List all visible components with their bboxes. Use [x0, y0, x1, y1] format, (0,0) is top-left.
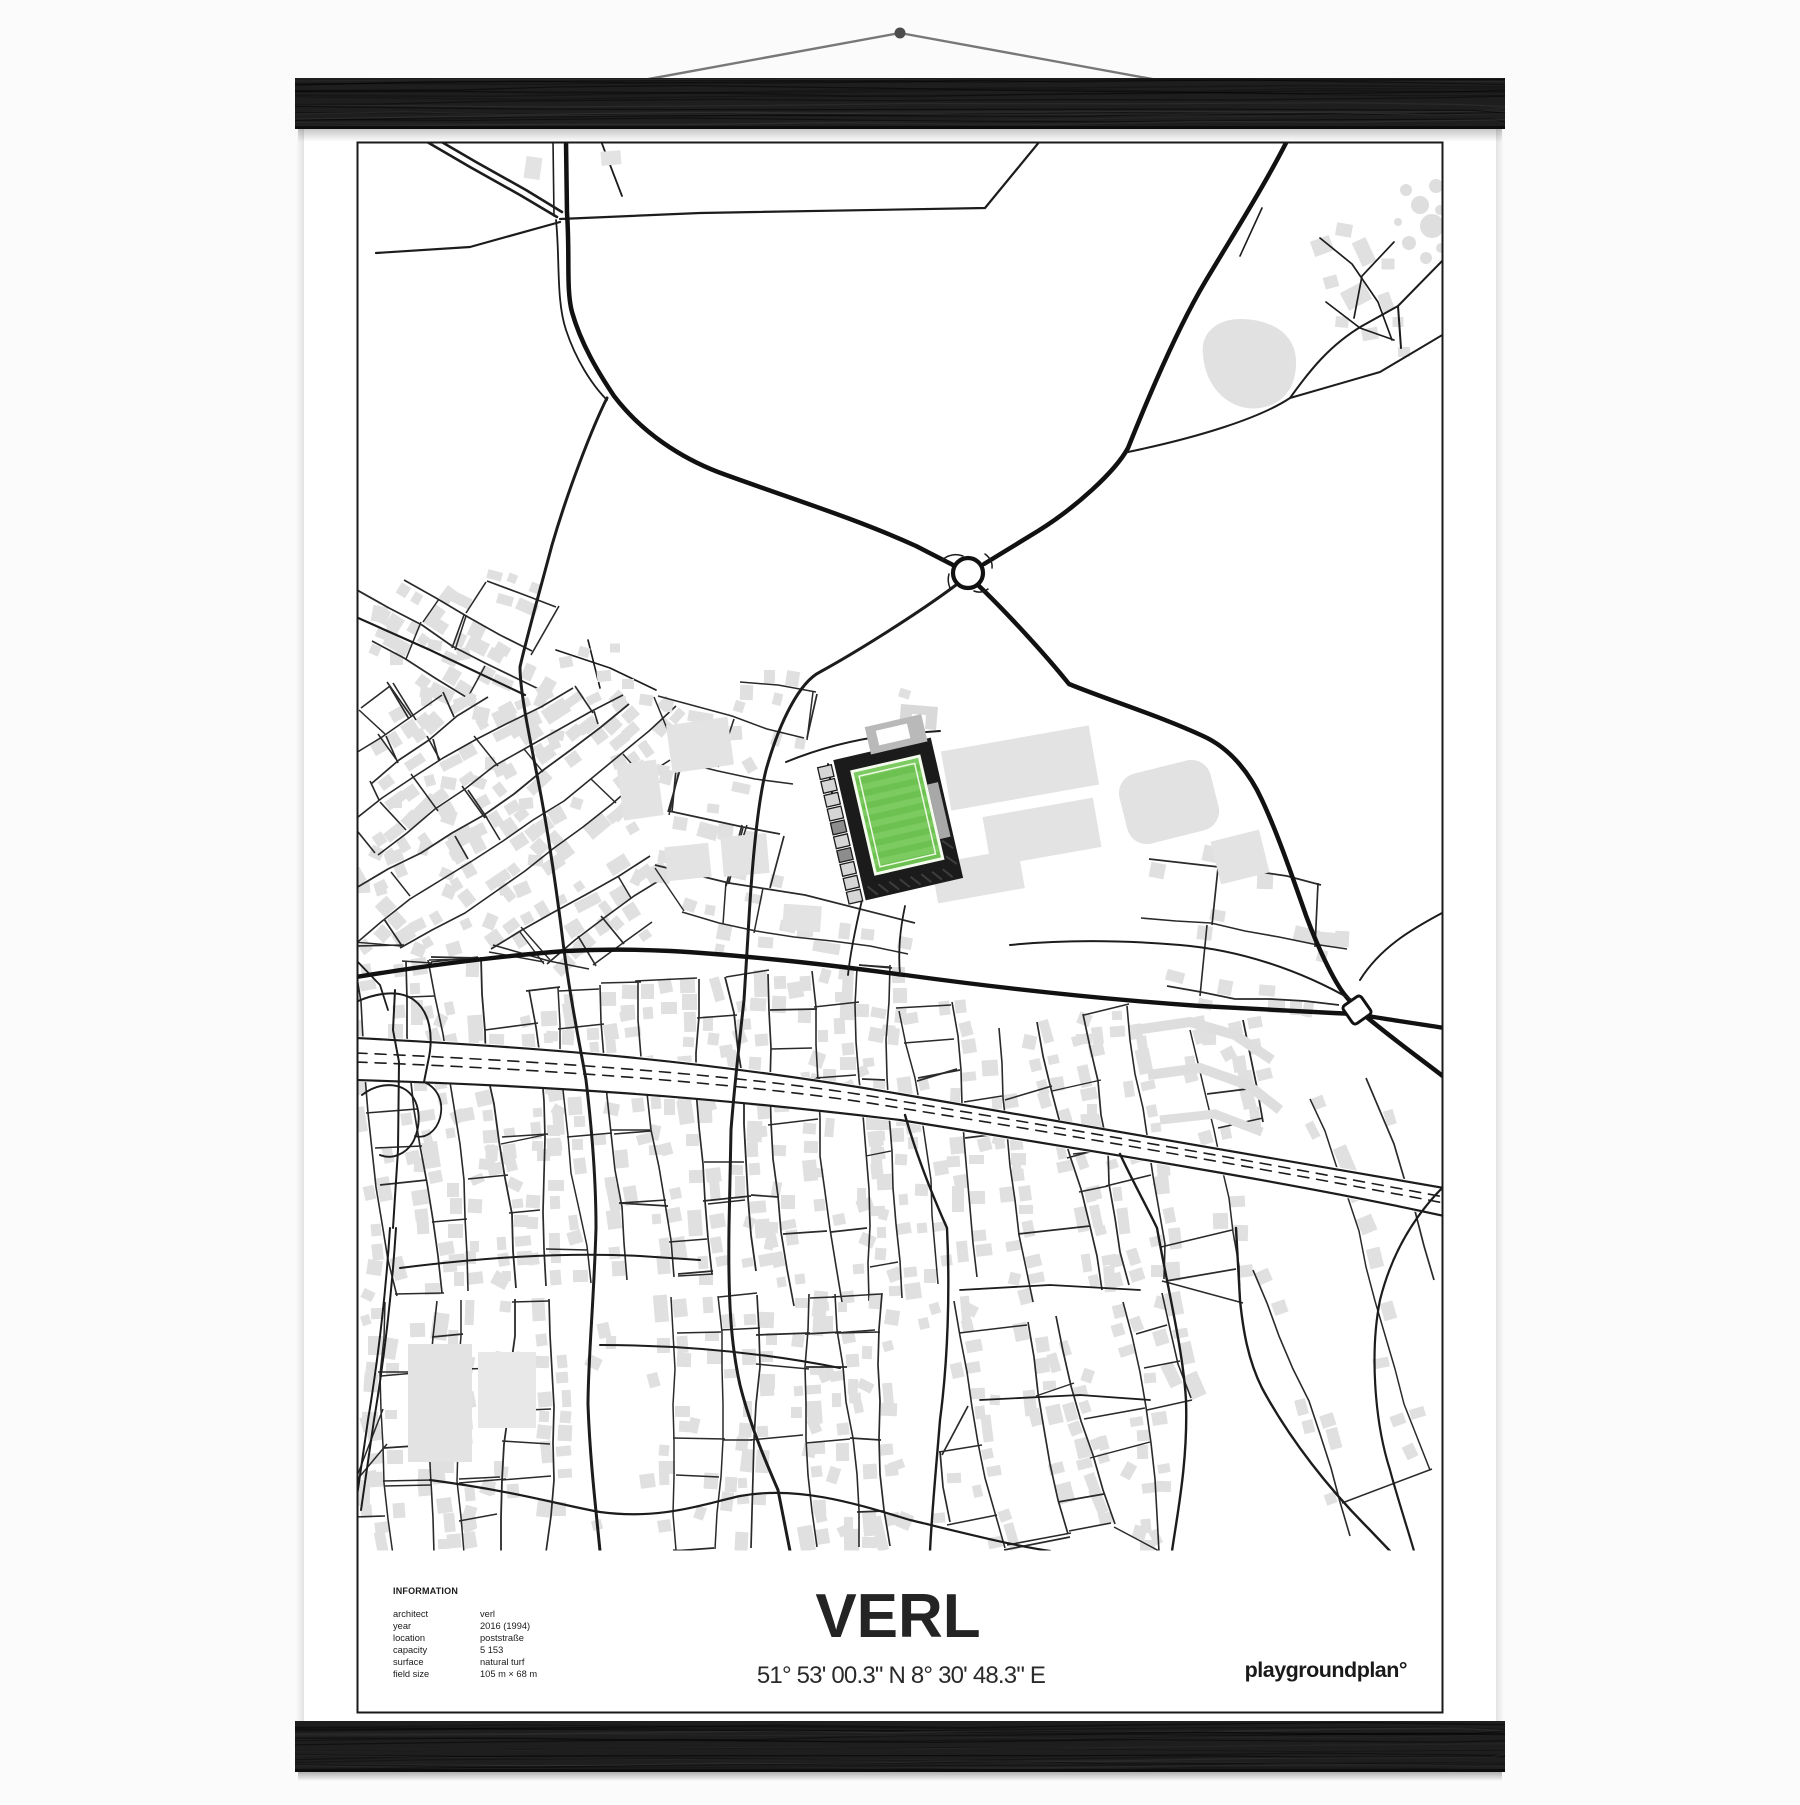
svg-text:playgroundplan°: playgroundplan° — [1245, 1658, 1407, 1682]
svg-text:105 m × 68 m: 105 m × 68 m — [480, 1669, 537, 1679]
svg-text:2016 (1994): 2016 (1994) — [480, 1621, 530, 1631]
svg-text:natural turf: natural turf — [480, 1657, 525, 1667]
svg-text:surface: surface — [393, 1657, 424, 1667]
svg-text:location: location — [393, 1633, 425, 1643]
svg-text:5 153: 5 153 — [480, 1645, 503, 1655]
svg-text:INFORMATION: INFORMATION — [393, 1586, 458, 1596]
svg-text:51° 53' 00.3" N 8° 30' 48.3" E: 51° 53' 00.3" N 8° 30' 48.3" E — [757, 1662, 1045, 1689]
svg-text:capacity: capacity — [393, 1645, 427, 1655]
svg-text:VERL: VERL — [815, 1582, 980, 1651]
svg-text:poststraße: poststraße — [480, 1633, 524, 1643]
svg-text:field size: field size — [393, 1669, 429, 1679]
svg-text:architect: architect — [393, 1609, 429, 1619]
svg-text:year: year — [393, 1621, 411, 1631]
svg-text:verl: verl — [480, 1609, 495, 1619]
